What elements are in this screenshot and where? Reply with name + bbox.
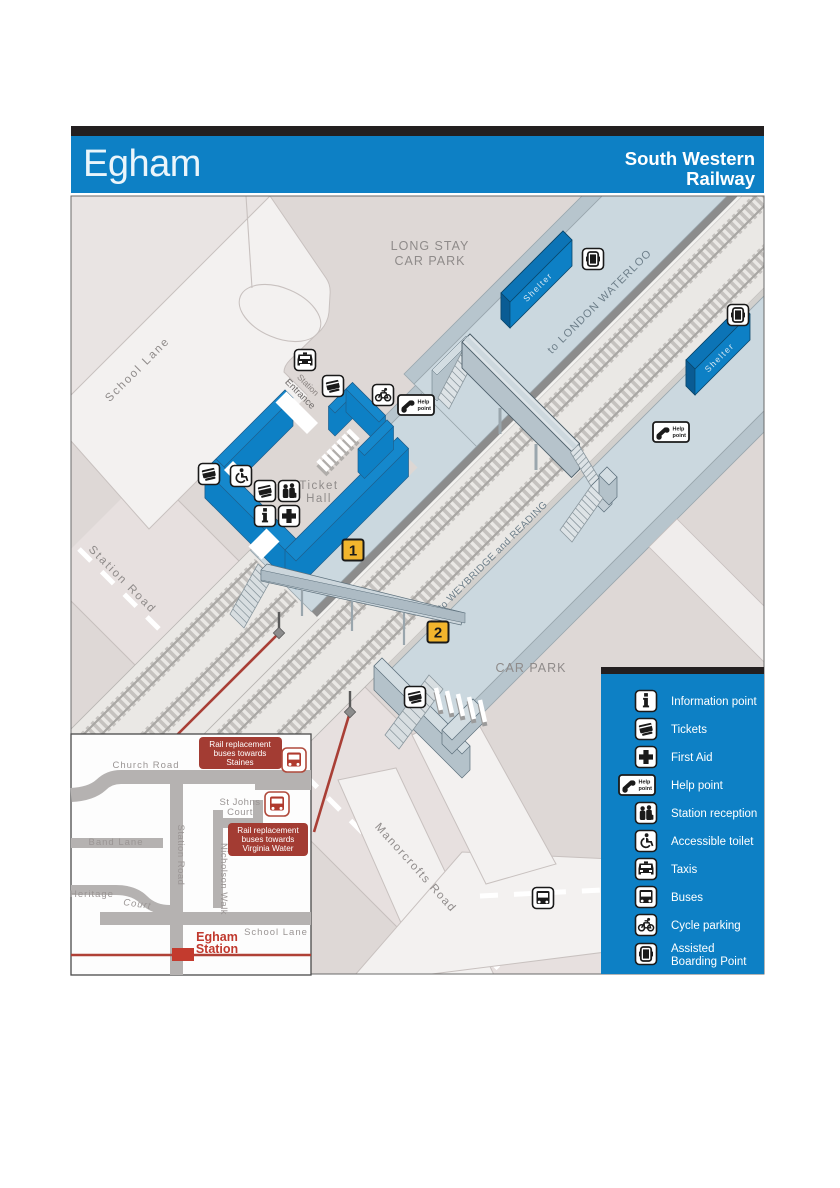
- svg-text:CAR PARK: CAR PARK: [496, 661, 567, 675]
- svg-text:buses towards: buses towards: [242, 835, 295, 844]
- svg-text:Nicholson Walk: Nicholson Walk: [218, 843, 229, 915]
- svg-text:Egham: Egham: [83, 143, 201, 185]
- svg-text:Virginia Water: Virginia Water: [243, 844, 294, 853]
- svg-text:Ticket: Ticket: [299, 480, 338, 492]
- svg-text:Band Lane: Band Lane: [89, 837, 144, 848]
- svg-text:Accessible toilet: Accessible toilet: [671, 836, 754, 848]
- svg-text:Help point: Help point: [671, 780, 724, 792]
- svg-text:Railway: Railway: [686, 168, 756, 189]
- svg-text:Information point: Information point: [671, 696, 757, 708]
- svg-text:LONG STAY: LONG STAY: [391, 239, 470, 253]
- svg-text:CAR PARK: CAR PARK: [395, 254, 466, 268]
- svg-text:buses towards: buses towards: [214, 749, 267, 758]
- svg-text:Tickets: Tickets: [671, 724, 707, 736]
- svg-text:Court: Court: [227, 807, 253, 818]
- svg-text:Staines: Staines: [226, 758, 253, 767]
- svg-text:2: 2: [434, 625, 442, 642]
- svg-text:Heritage: Heritage: [70, 889, 114, 900]
- svg-text:Station reception: Station reception: [671, 808, 757, 820]
- svg-text:Rail replacement: Rail replacement: [209, 740, 271, 749]
- svg-text:Cycle parking: Cycle parking: [671, 920, 741, 932]
- svg-text:1: 1: [349, 543, 357, 560]
- svg-text:School Lane: School Lane: [244, 927, 308, 938]
- svg-text:Church Road: Church Road: [113, 760, 180, 771]
- svg-text:Taxis: Taxis: [671, 864, 697, 876]
- svg-text:Buses: Buses: [671, 892, 703, 904]
- svg-text:Assisted: Assisted: [671, 943, 714, 955]
- svg-text:Station Road: Station Road: [175, 825, 186, 886]
- svg-text:Rail replacement: Rail replacement: [237, 826, 299, 835]
- svg-text:Station: Station: [196, 942, 238, 956]
- svg-text:Hall: Hall: [306, 493, 332, 505]
- svg-text:Boarding Point: Boarding Point: [671, 956, 747, 968]
- svg-text:South Western: South Western: [625, 148, 755, 169]
- svg-text:First Aid: First Aid: [671, 752, 713, 764]
